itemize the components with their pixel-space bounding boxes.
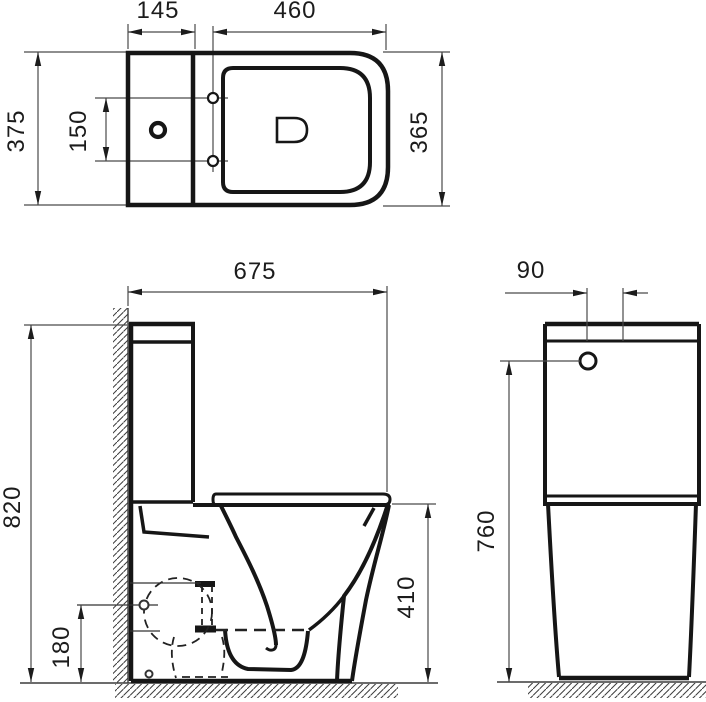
side-view xyxy=(20,286,438,698)
hidden-trapway xyxy=(144,578,306,678)
side-bowl xyxy=(131,494,390,681)
technical-drawing: 145 460 375 150 365 675 820 180 410 90 7… xyxy=(0,0,706,702)
dim-label-overall-width: 375 xyxy=(5,109,29,152)
flush-outlet-mark xyxy=(277,118,307,142)
side-view-dimension-lines xyxy=(24,286,436,682)
dim-label-pan-width: 365 xyxy=(408,110,432,153)
floor-hatch-side xyxy=(115,684,398,698)
floor-hatch-rear xyxy=(528,683,706,698)
dim-label-cistern-width: 145 xyxy=(136,0,179,23)
push-button-mark xyxy=(151,123,165,137)
side-details xyxy=(77,583,201,678)
dim-label-outlet-height: 180 xyxy=(50,625,74,668)
dim-label-inlet-height: 760 xyxy=(475,509,499,552)
dim-label-seat-length: 460 xyxy=(273,0,316,23)
rear-view-dimension-lines xyxy=(500,288,648,682)
rear-outline xyxy=(543,324,701,678)
top-view-outline xyxy=(128,53,388,205)
dim-label-bowl-height: 410 xyxy=(395,575,419,618)
hinge-hole-bottom xyxy=(208,156,218,166)
inlet-hole-mark xyxy=(580,353,596,369)
wall-hatch xyxy=(113,308,128,683)
rear-view xyxy=(497,288,706,698)
side-cistern xyxy=(129,323,195,681)
dim-label-fixing-hole-centers: 150 xyxy=(67,109,91,152)
hinge-hole-top xyxy=(208,93,218,103)
drawing-linework xyxy=(0,0,706,702)
dim-label-overall-height: 820 xyxy=(1,485,25,528)
dim-label-overall-depth: 675 xyxy=(233,260,276,284)
dim-label-inlet-offset: 90 xyxy=(517,259,546,283)
